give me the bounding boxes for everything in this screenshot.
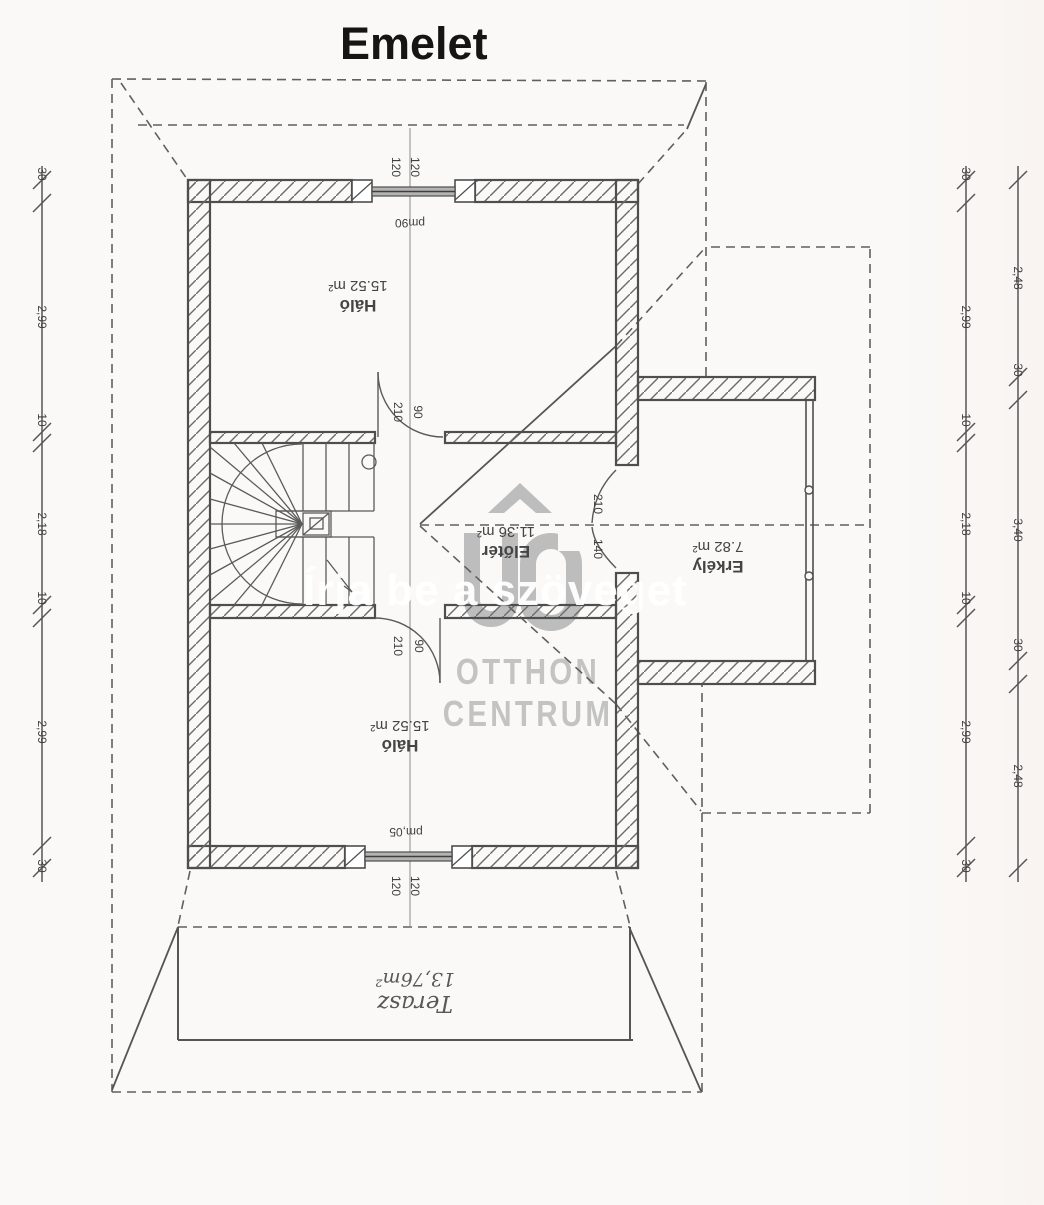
svg-text:2,18: 2,18 [35,512,49,536]
logo-roof-icon [488,483,552,513]
svg-text:7.82 m²: 7.82 m² [693,538,744,555]
svg-text:3,40: 3,40 [1011,518,1025,542]
svg-text:2,48: 2,48 [1011,266,1025,290]
svg-text:pm,05: pm,05 [389,825,423,839]
balcony-railing [805,400,813,661]
svg-text:15.52 m²: 15.52 m² [370,717,429,734]
svg-text:2,18: 2,18 [959,512,973,536]
svg-text:10: 10 [959,591,973,605]
svg-text:30: 30 [959,859,973,873]
svg-text:2,99: 2,99 [35,720,49,744]
svg-text:2,99: 2,99 [35,305,49,329]
svg-text:Előtér: Előtér [482,542,531,561]
door-bottom-bedroom [375,618,440,683]
svg-text:Háló: Háló [382,736,419,755]
svg-text:210: 210 [391,402,405,422]
svg-text:11.36 m²: 11.36 m² [477,523,535,540]
svg-text:pm90: pm90 [395,216,425,230]
svg-text:13,76m²: 13,76m² [375,968,455,990]
svg-text:120: 120 [389,876,403,896]
overlay-watermark-text: Írja be a szöveget [303,566,763,616]
svg-text:120: 120 [408,157,422,177]
svg-text:120: 120 [389,157,403,177]
svg-text:Terasz: Terasz [376,990,453,1016]
brand-text-otthon: OTTHON [456,651,600,691]
svg-text:140: 140 [591,539,605,559]
svg-text:210: 210 [591,494,605,514]
svg-text:120: 120 [408,876,422,896]
svg-text:30: 30 [35,859,49,873]
room-label-bedroom-bottom: Háló 15.52 m² [370,717,429,755]
svg-text:15.52 m²: 15.52 m² [328,277,387,294]
svg-text:10: 10 [35,591,49,605]
svg-text:30: 30 [1011,363,1025,377]
svg-text:30: 30 [959,167,973,181]
svg-text:10: 10 [35,413,49,427]
brand-text-centrum: CENTRUM [443,693,613,733]
svg-text:2,99: 2,99 [959,720,973,744]
room-label-terrace: Terasz 13,76m² [375,968,455,1016]
bottom-window [345,846,472,868]
svg-text:30: 30 [35,167,49,181]
room-label-bedroom-top: Háló 15.52 m² [328,277,387,315]
svg-text:30: 30 [1011,638,1025,652]
top-window [352,180,475,202]
svg-text:10: 10 [959,413,973,427]
svg-text:2,99: 2,99 [959,305,973,329]
svg-text:90: 90 [412,639,426,653]
page-root: { "title": "Emelet", "rooms": { "bedroom… [0,0,1044,1205]
svg-text:210: 210 [391,636,405,656]
svg-text:Háló: Háló [340,296,377,315]
svg-text:90: 90 [411,405,425,419]
svg-text:2,48: 2,48 [1011,764,1025,788]
